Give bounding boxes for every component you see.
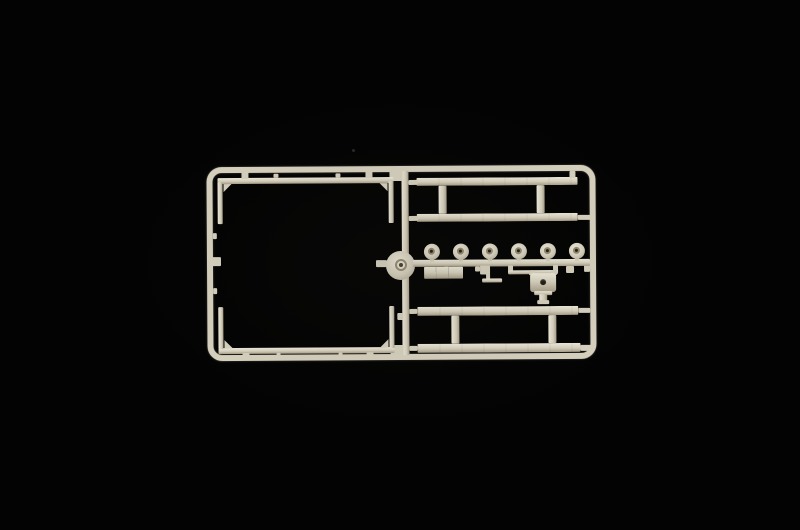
sprue-gate (409, 309, 417, 314)
frame-nub (213, 233, 217, 239)
frame-nub (584, 265, 590, 272)
gate-mark (335, 173, 340, 177)
gate-mark (277, 353, 281, 357)
chassis-crossmember (451, 316, 459, 344)
gate-mark (339, 352, 343, 356)
sprue-gate (408, 180, 417, 185)
block-part (424, 267, 463, 279)
wheel-hub-part (511, 243, 527, 259)
frame-nub (212, 257, 221, 266)
model-kit-sprue (0, 0, 800, 530)
sprue-tab (365, 171, 372, 178)
sprue-gate (580, 345, 591, 351)
step-bracket-foot (482, 278, 502, 282)
corner-wedge (380, 339, 388, 347)
sprue-gate (410, 346, 418, 351)
chassis-rail (417, 213, 578, 222)
kingpin-foot (537, 300, 549, 304)
chassis-crossmember (548, 315, 556, 343)
sprue-gate (578, 215, 591, 220)
sprue-gate (409, 216, 418, 221)
sprue-tab (367, 352, 374, 359)
chassis-rail (417, 343, 580, 353)
sprue-photo (0, 0, 800, 530)
frame-nub (213, 288, 217, 294)
wheel-hub-part (424, 244, 440, 260)
chassis-crossmember (439, 186, 447, 214)
body-corner-post (389, 306, 394, 348)
dust-speck (352, 149, 355, 152)
sprue-tab (243, 353, 250, 360)
wheel-hub-part (453, 244, 469, 260)
fifth-wheel-hole (540, 279, 546, 285)
wheel-hub-part (569, 243, 585, 259)
hub-row-runner (413, 259, 590, 267)
body-corner-post (217, 182, 222, 224)
chassis-rail (416, 177, 577, 186)
chassis-crossmember (537, 185, 545, 213)
body-corner-post (388, 181, 393, 223)
body-corner-post (218, 307, 223, 349)
sprue-tab (566, 266, 574, 273)
corner-wedge (380, 183, 388, 191)
corner-wedge (224, 184, 232, 192)
sprue-tab (241, 172, 248, 179)
wheel-hub-part (482, 243, 498, 259)
sprue-gate (578, 308, 590, 313)
sprue-gate (569, 171, 575, 178)
corner-wedge (224, 340, 232, 348)
wheel-hub-row (0, 0, 798, 2)
disc-center-dot (399, 263, 403, 267)
gate-mark (273, 174, 278, 178)
runner-nub (397, 313, 403, 320)
wheel-hub-part (540, 243, 556, 259)
